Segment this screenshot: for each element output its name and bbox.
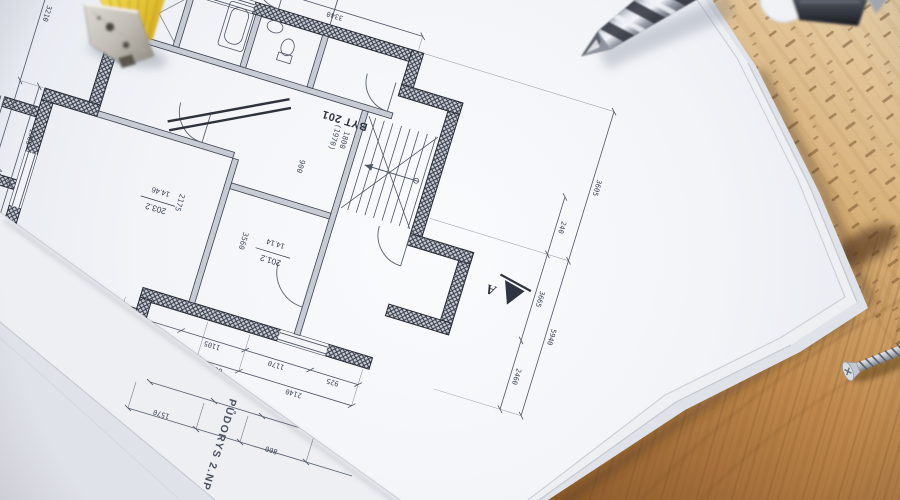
photo-stage: 1570 800 PŮDORYS 2.NP [0,0,900,500]
scene-photo: 1570 800 PŮDORYS 2.NP [0,0,900,500]
vignette [0,0,900,500]
